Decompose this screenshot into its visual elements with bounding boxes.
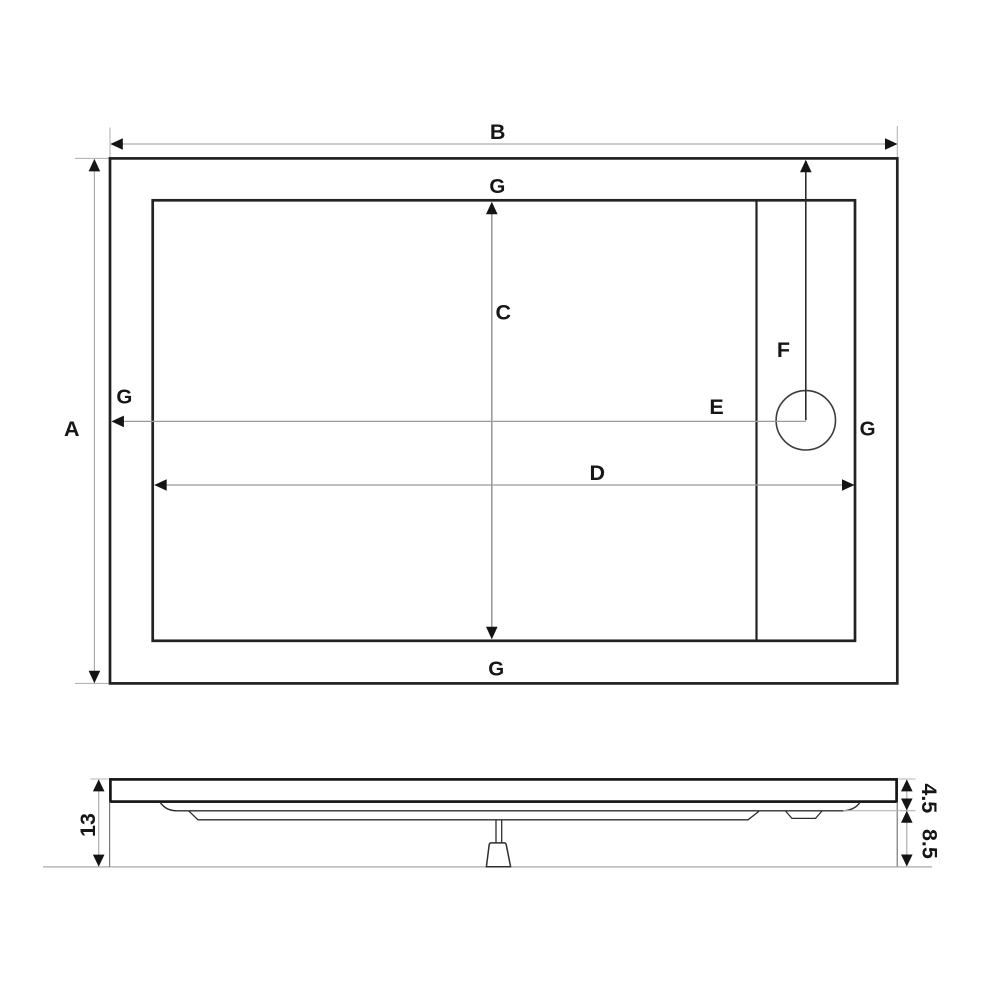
svg-text:C: C [496,300,512,324]
svg-text:13: 13 [76,813,100,837]
svg-text:E: E [709,395,723,419]
svg-text:4.5: 4.5 [917,783,941,813]
svg-text:A: A [64,417,80,441]
svg-text:8.5: 8.5 [917,829,941,859]
svg-text:F: F [777,338,790,362]
svg-text:G: G [488,658,504,681]
svg-text:G: G [116,386,132,409]
svg-text:G: G [489,175,505,198]
svg-text:B: B [490,120,506,144]
svg-text:G: G [860,418,876,441]
svg-text:D: D [590,461,606,485]
